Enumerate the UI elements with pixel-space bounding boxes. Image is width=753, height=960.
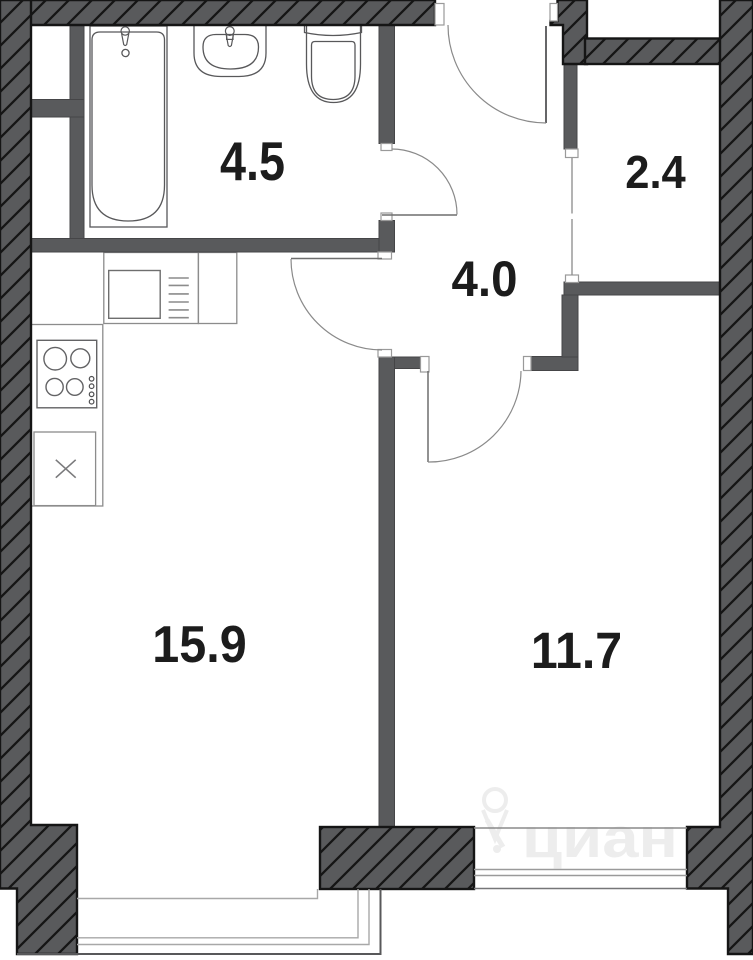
svg-text:циан: циан <box>522 806 678 870</box>
